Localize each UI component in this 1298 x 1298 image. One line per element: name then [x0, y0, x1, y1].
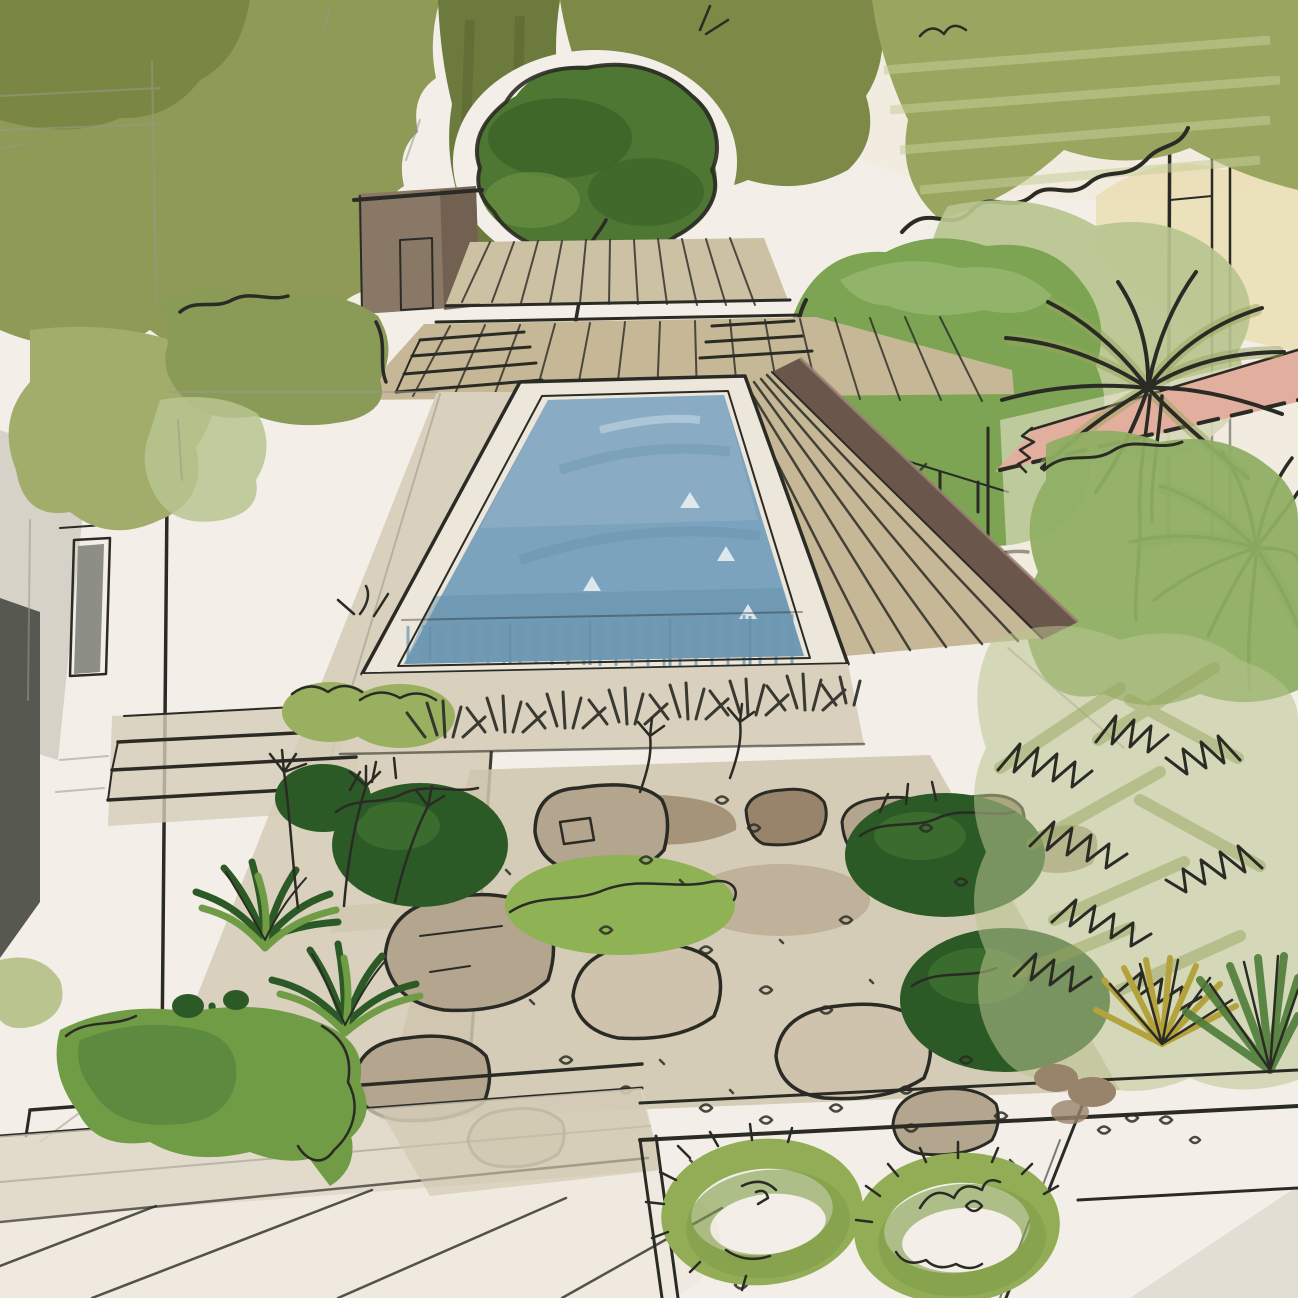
artwork-canvas: Garden design perspective sketch: [0, 0, 1298, 1298]
fern-bank: [974, 626, 1298, 1091]
grey-window-panel: [74, 544, 104, 674]
garden-sketch-illustration: Garden design perspective sketch: [0, 0, 1298, 1298]
upper-boardwalk: [446, 238, 788, 304]
dark-doorway: [0, 598, 40, 958]
light-green-mound: [505, 855, 735, 955]
